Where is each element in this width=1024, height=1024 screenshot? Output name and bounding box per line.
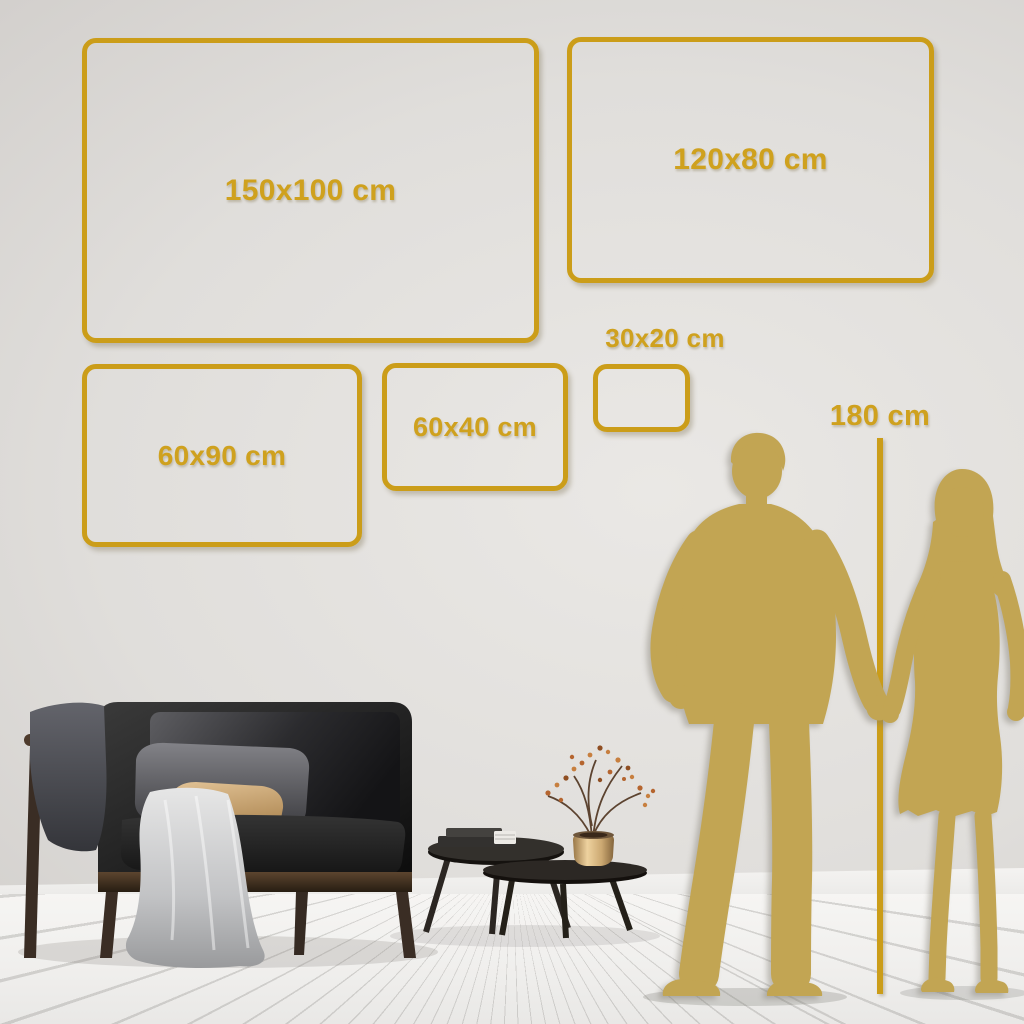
size-box-60x40: 60x40 cm	[382, 363, 568, 491]
canvas-size-guide: 150x100 cm 120x80 cm 60x90 cm 60x40 cm 3…	[0, 0, 1024, 1024]
wood-floor	[0, 894, 1024, 1024]
size-label-60x90: 60x90 cm	[158, 440, 287, 472]
size-label-150x100: 150x100 cm	[225, 174, 397, 208]
height-ruler-line	[877, 438, 883, 994]
size-label-60x40: 60x40 cm	[413, 412, 537, 443]
size-box-30x20	[593, 364, 690, 432]
size-box-60x90: 60x90 cm	[82, 364, 362, 547]
size-box-150x100: 150x100 cm	[82, 38, 539, 343]
size-label-30x20: 30x20 cm	[585, 322, 745, 354]
height-label-180cm: 180 cm	[806, 399, 954, 433]
size-box-120x80: 120x80 cm	[567, 37, 934, 283]
size-label-120x80: 120x80 cm	[673, 143, 828, 177]
